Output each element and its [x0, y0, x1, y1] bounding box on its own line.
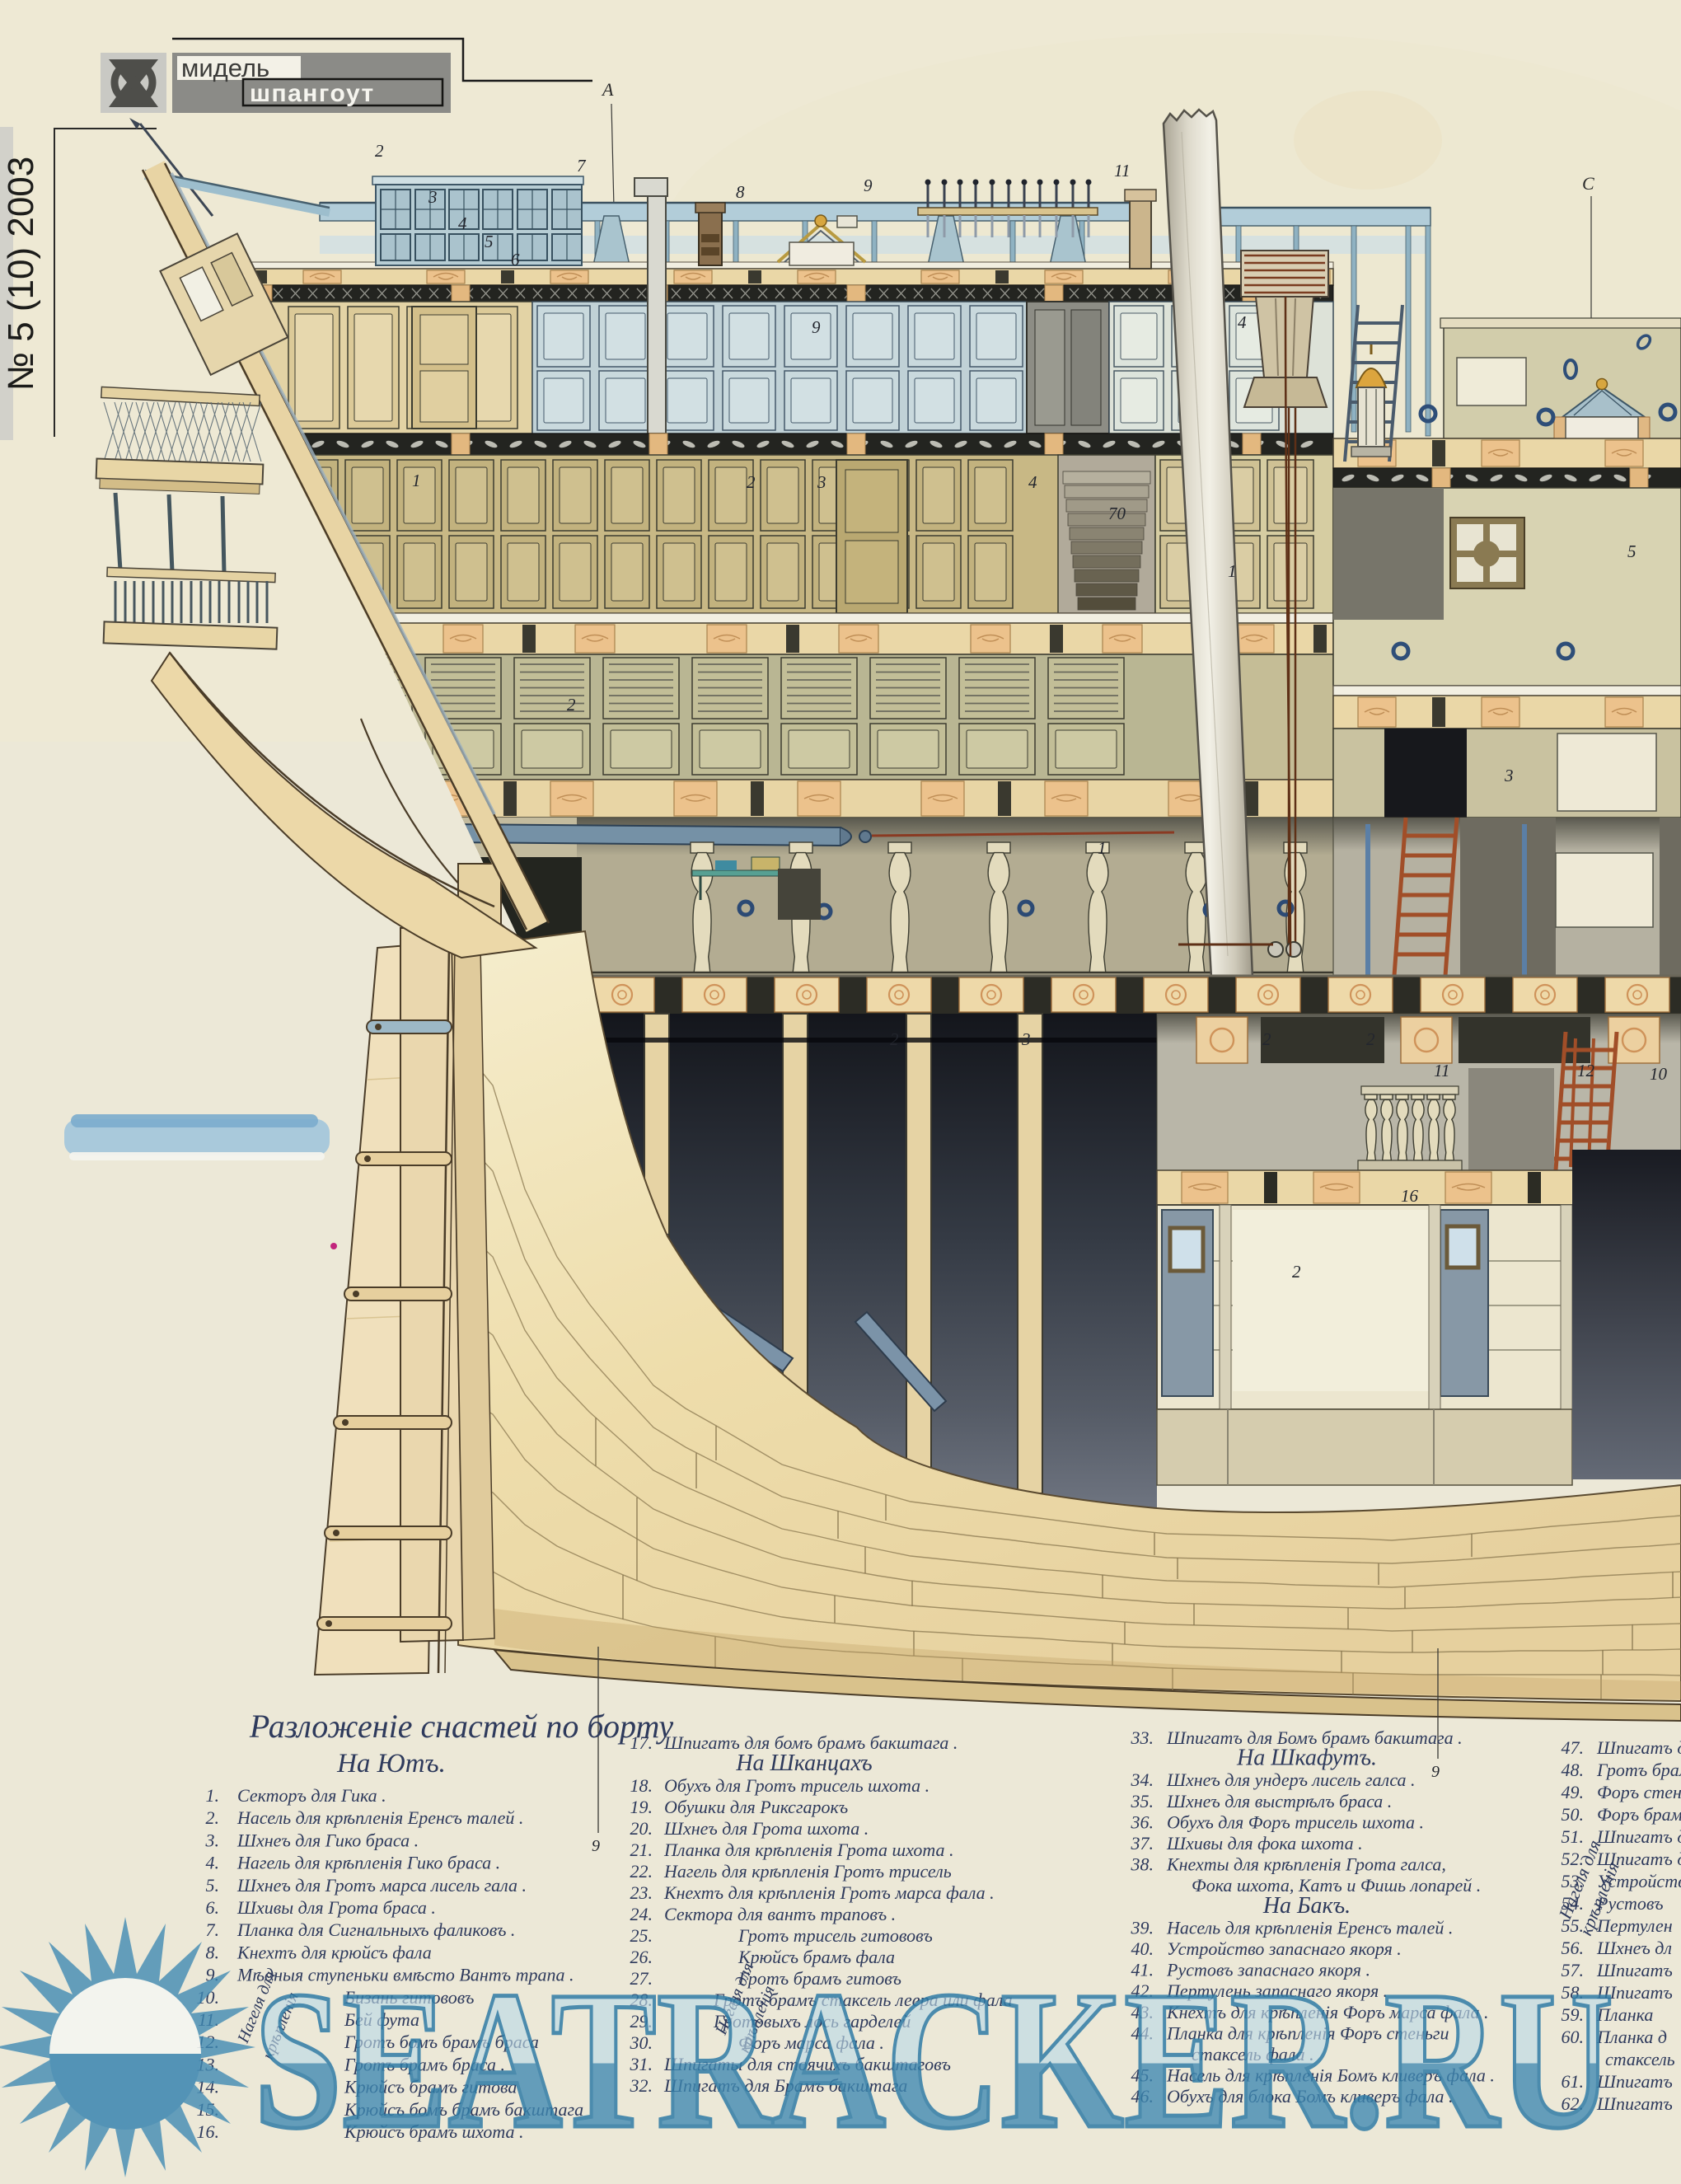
svg-text:Шхнеъ для Гико браса .: Шхнеъ для Гико браса .	[236, 1830, 419, 1850]
svg-text:2: 2	[1366, 1029, 1375, 1049]
svg-text:23.: 23.	[630, 1882, 653, 1903]
svg-text:A: A	[601, 79, 614, 100]
svg-text:33.: 33.	[1131, 1727, 1154, 1748]
svg-text:3: 3	[1021, 1029, 1031, 1049]
svg-text:Шхивы для фока шхота .: Шхивы для фока шхота .	[1166, 1833, 1363, 1854]
svg-text:Гротъ брамъ: Гротъ брамъ	[1596, 1760, 1681, 1780]
svg-text:3: 3	[817, 472, 826, 492]
svg-text:49.: 49.	[1562, 1782, 1585, 1802]
svg-text:19.: 19.	[630, 1797, 653, 1817]
svg-text:1.: 1.	[206, 1785, 220, 1806]
svg-text:Планка для Сигнальныхъ фали: Планка для Сигнальныхъ фаликовъ .	[236, 1919, 515, 1940]
svg-text:№ 5 (10) 2003: № 5 (10) 2003	[1, 157, 41, 391]
svg-text:5: 5	[1627, 541, 1637, 561]
svg-text:Сектора для вантъ траповъ .: Сектора для вантъ траповъ .	[664, 1904, 896, 1924]
svg-text:39.: 39.	[1131, 1917, 1154, 1938]
svg-text:20.: 20.	[630, 1818, 653, 1839]
svg-text:Секторъ для Гика .: Секторъ для Гика .	[237, 1785, 386, 1806]
svg-text:21.: 21.	[630, 1840, 653, 1860]
svg-text:8: 8	[736, 182, 745, 202]
svg-text:Шпигатъ для: Шпигатъ для	[1596, 1737, 1681, 1758]
svg-text:4: 4	[458, 213, 467, 233]
svg-text:2: 2	[747, 472, 756, 492]
svg-text:На Ютъ.: На Ютъ.	[336, 1749, 446, 1779]
svg-text:4: 4	[1028, 472, 1037, 492]
svg-text:Обушки для Риксгарокъ: Обушки для Риксгарокъ	[664, 1797, 848, 1817]
svg-text:4: 4	[1238, 312, 1247, 332]
svg-text:16.: 16.	[197, 2121, 220, 2142]
svg-text:стаксель: стаксель	[1605, 2049, 1675, 2069]
svg-text:9: 9	[864, 176, 873, 195]
svg-text:70: 70	[1108, 504, 1126, 523]
svg-text:Форъ брамъ: Форъ брамъ	[1597, 1804, 1681, 1825]
svg-text:Форъ стень: Форъ стень	[1597, 1782, 1681, 1802]
svg-text:34.: 34.	[1131, 1769, 1154, 1790]
svg-text:C: C	[1582, 173, 1594, 194]
svg-text:1: 1	[1228, 561, 1237, 581]
svg-text:На Шкафутъ.: На Шкафутъ.	[1236, 1746, 1377, 1771]
svg-text:9: 9	[812, 317, 821, 337]
svg-text:9: 9	[1431, 1763, 1440, 1781]
svg-text:Шхнеъ для Гротъ марса лисе: Шхнеъ для Гротъ марса лисель гала .	[236, 1875, 527, 1896]
svg-text:2: 2	[890, 1029, 899, 1049]
svg-text:Гротъ трисель гитововъ: Гротъ трисель гитововъ	[737, 1925, 933, 1946]
svg-text:шпангоут: шпангоут	[250, 80, 375, 107]
svg-text:Шпигатъ дл: Шпигатъ дл	[1596, 1826, 1681, 1847]
svg-text:16: 16	[1401, 1186, 1419, 1206]
svg-text:6: 6	[511, 250, 520, 269]
svg-text:22.: 22.	[630, 1861, 653, 1882]
svg-text:Кнехты для крѣпленiя Грота: Кнехты для крѣпленiя Грота галса,	[1166, 1854, 1446, 1875]
svg-text:Насель для крѣпленiя Еренсъ: Насель для крѣпленiя Еренсъ талей .	[1166, 1917, 1453, 1938]
svg-text:47.: 47.	[1562, 1737, 1585, 1758]
svg-text:50.: 50.	[1562, 1804, 1585, 1825]
svg-text:5.: 5.	[206, 1875, 220, 1896]
svg-text:1: 1	[1098, 838, 1107, 858]
svg-text:Шхнеъ для выстрѣлъ браса .: Шхнеъ для выстрѣлъ браса .	[1166, 1791, 1392, 1811]
svg-text:36.: 36.	[1131, 1811, 1154, 1832]
svg-text:12: 12	[1577, 1061, 1595, 1080]
svg-text:3: 3	[1504, 766, 1514, 785]
svg-text:На Бакъ.: На Бакъ.	[1262, 1893, 1351, 1919]
svg-text:На Шканцахъ: На Шканцахъ	[735, 1750, 872, 1776]
svg-text:3.: 3.	[205, 1830, 220, 1850]
svg-text:Насель для крѣпленiя Еренсъ: Насель для крѣпленiя Еренсъ талей .	[236, 1807, 523, 1828]
svg-text:2: 2	[567, 695, 576, 715]
svg-text:Планка для крѣпленiя Грота: Планка для крѣпленiя Грота шхота .	[663, 1840, 954, 1860]
svg-text:10: 10	[1650, 1064, 1668, 1084]
svg-text:18.: 18.	[630, 1775, 653, 1796]
svg-text:Нагель для крѣпленiя Гико: Нагель для крѣпленiя Гико браса .	[236, 1853, 500, 1873]
svg-text:Кнехтъ для крѣпленiя Гротъ: Кнехтъ для крѣпленiя Гротъ марса фала .	[663, 1882, 995, 1903]
svg-text:2: 2	[1292, 1262, 1301, 1282]
svg-text:8.: 8.	[206, 1942, 220, 1962]
svg-text:6.: 6.	[206, 1897, 220, 1918]
svg-text:Нагель для крѣпленiя Гротъ: Нагель для крѣпленiя Гротъ трисель	[663, 1861, 952, 1882]
svg-text:48.: 48.	[1562, 1760, 1585, 1780]
svg-text:51.: 51.	[1562, 1826, 1585, 1847]
svg-text:7: 7	[577, 156, 587, 176]
svg-text:35.: 35.	[1131, 1791, 1154, 1811]
svg-text:Пертулен: Пертулен	[1596, 1915, 1673, 1936]
svg-text:24.: 24.	[630, 1904, 653, 1924]
svg-text:2.: 2.	[206, 1807, 220, 1828]
svg-text:37.: 37.	[1131, 1833, 1154, 1854]
svg-text:11: 11	[1434, 1061, 1449, 1080]
svg-text:2: 2	[1262, 1029, 1271, 1049]
svg-text:17.: 17.	[630, 1732, 653, 1753]
svg-text:7.: 7.	[206, 1919, 220, 1940]
svg-text:Шхнеъ для Грота шхота .: Шхнеъ для Грота шхота .	[663, 1818, 869, 1839]
svg-text:Шхнеъ для ундеръ лисель га: Шхнеъ для ундеръ лисель галса .	[1166, 1769, 1416, 1790]
svg-text:Обухъ для Гротъ трисель шх: Обухъ для Гротъ трисель шхота .	[664, 1775, 929, 1796]
svg-text:3: 3	[428, 187, 438, 207]
svg-text:1: 1	[412, 471, 421, 490]
svg-text:25.: 25.	[630, 1925, 653, 1946]
svg-text:SEATRACKER.RU: SEATRACKER.RU	[254, 1950, 1613, 2169]
svg-text:Шхивы для Грота браса .: Шхивы для Грота браса .	[236, 1897, 436, 1918]
svg-text:11: 11	[1114, 161, 1130, 180]
svg-text:5: 5	[485, 232, 494, 251]
svg-text:4.: 4.	[206, 1853, 220, 1873]
svg-text:Разложенiе снастей по борту: Разложенiе снастей по борту	[249, 1708, 674, 1745]
svg-text:38.: 38.	[1131, 1854, 1154, 1875]
svg-text:9: 9	[592, 1837, 600, 1855]
svg-text:2: 2	[375, 141, 384, 161]
svg-text:Обухъ для Форъ трисель шхо: Обухъ для Форъ трисель шхота .	[1167, 1811, 1424, 1832]
